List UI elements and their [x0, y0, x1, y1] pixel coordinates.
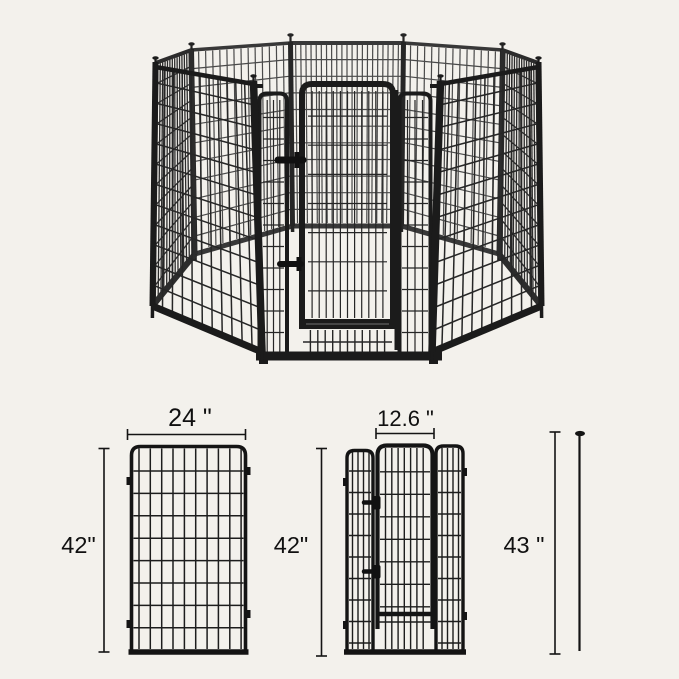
svg-text:12.6 ": 12.6 " — [377, 406, 434, 431]
svg-text:42": 42" — [61, 532, 95, 558]
svg-text:24 ": 24 " — [168, 404, 212, 432]
svg-text:42": 42" — [274, 532, 308, 558]
svg-text:43 ": 43 " — [503, 532, 544, 558]
